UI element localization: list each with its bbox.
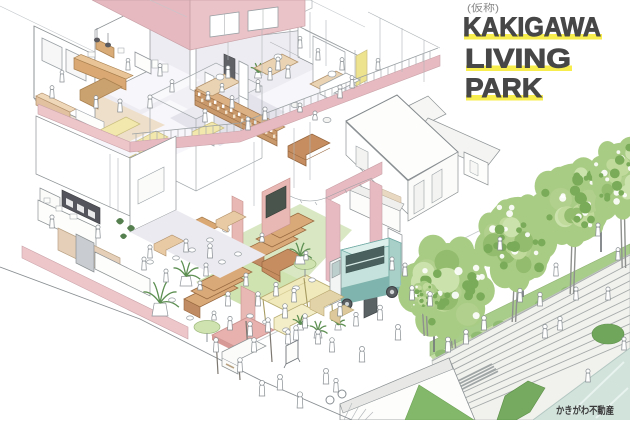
svg-text:PARK: PARK [465, 73, 543, 103]
svg-text:LIVING: LIVING [465, 44, 571, 74]
svg-text:かきがわ不動産: かきがわ不動産 [556, 404, 614, 417]
svg-text:KAKIGAWA: KAKIGAWA [463, 12, 601, 42]
